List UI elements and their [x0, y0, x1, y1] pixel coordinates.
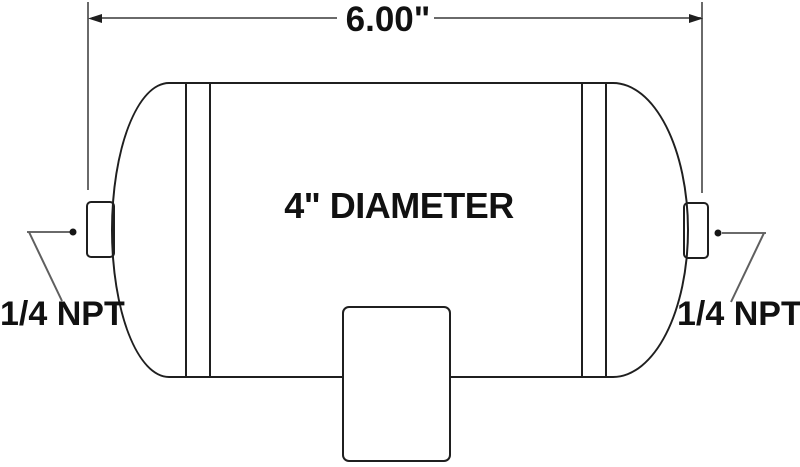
weld-seam-line-left-outer — [185, 84, 187, 376]
dimension-line-left-segment — [92, 17, 337, 19]
weld-seam-line-right-inner — [581, 84, 583, 376]
diameter-label: 4" DIAMETER — [284, 188, 514, 224]
right-port-label: 1/4 NPT — [677, 297, 800, 331]
leader-line-right-diagonal — [731, 233, 764, 302]
left-port-label: 1/4 NPT — [0, 297, 125, 331]
leader-line-right-horizontal — [722, 232, 766, 234]
extension-line-left — [87, 2, 89, 190]
extension-line-right — [701, 2, 703, 193]
dimension-line-right-segment — [434, 17, 701, 19]
left-port-fitting — [86, 201, 115, 258]
weld-seam-line-right-outer — [605, 84, 607, 376]
leader-line-left-horizontal — [27, 231, 72, 233]
weld-seam-line-left-inner — [209, 84, 211, 376]
mounting-bracket — [342, 306, 451, 462]
length-dimension-label: 6.00" — [346, 2, 431, 37]
air-tank-technical-drawing: 6.00" 4" DIAMETER 1/4 NPT 1/4 NPT — [0, 0, 800, 467]
leader-dot-right — [715, 230, 722, 237]
right-port-fitting — [683, 202, 709, 259]
leader-line-left-diagonal — [29, 232, 62, 301]
